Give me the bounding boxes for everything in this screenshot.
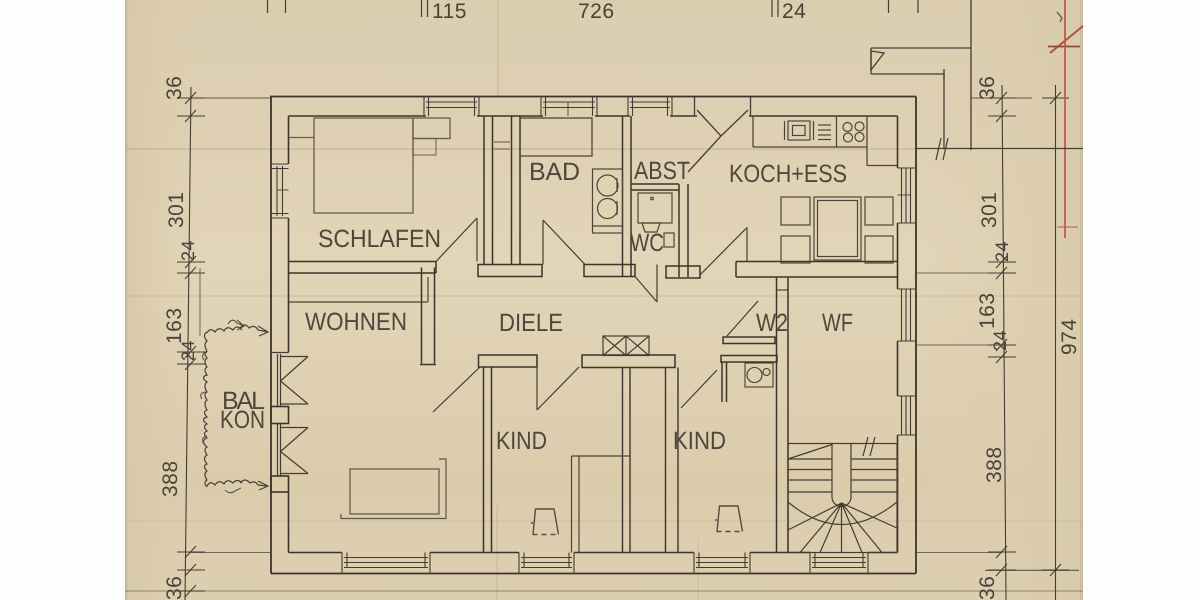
svg-text:WC: WC	[630, 229, 664, 257]
svg-text:24: 24	[782, 0, 806, 23]
svg-text:974: 974	[1058, 318, 1081, 355]
svg-text:24: 24	[990, 330, 1010, 351]
svg-text:KIND: KIND	[673, 427, 726, 455]
svg-text:ABST: ABST	[634, 157, 690, 185]
svg-text:388: 388	[159, 460, 182, 497]
svg-text:388: 388	[983, 446, 1006, 483]
svg-text:KON: KON	[220, 406, 265, 434]
svg-text:726: 726	[578, 0, 615, 23]
svg-text:163: 163	[976, 292, 999, 329]
svg-text:24: 24	[178, 340, 198, 361]
svg-text:SCHLAFEN: SCHLAFEN	[318, 225, 441, 253]
svg-text:WF: WF	[822, 309, 853, 337]
svg-text:W2: W2	[756, 309, 788, 337]
svg-text:24: 24	[178, 240, 198, 261]
svg-text:WOHNEN: WOHNEN	[305, 308, 407, 336]
svg-text:36: 36	[976, 576, 999, 600]
svg-text:36: 36	[163, 576, 186, 600]
svg-text:301: 301	[978, 191, 1001, 228]
svg-text:301: 301	[165, 191, 188, 228]
svg-text:DIELE: DIELE	[499, 309, 563, 337]
svg-text:KOCH+ESS: KOCH+ESS	[729, 160, 847, 188]
svg-text:KIND: KIND	[496, 427, 547, 455]
svg-text:36: 36	[163, 76, 186, 100]
svg-text:36: 36	[976, 76, 999, 100]
svg-text:115: 115	[432, 0, 467, 23]
svg-text:BAD: BAD	[529, 158, 580, 186]
svg-text:24: 24	[992, 241, 1012, 262]
svg-text:163: 163	[163, 307, 186, 344]
